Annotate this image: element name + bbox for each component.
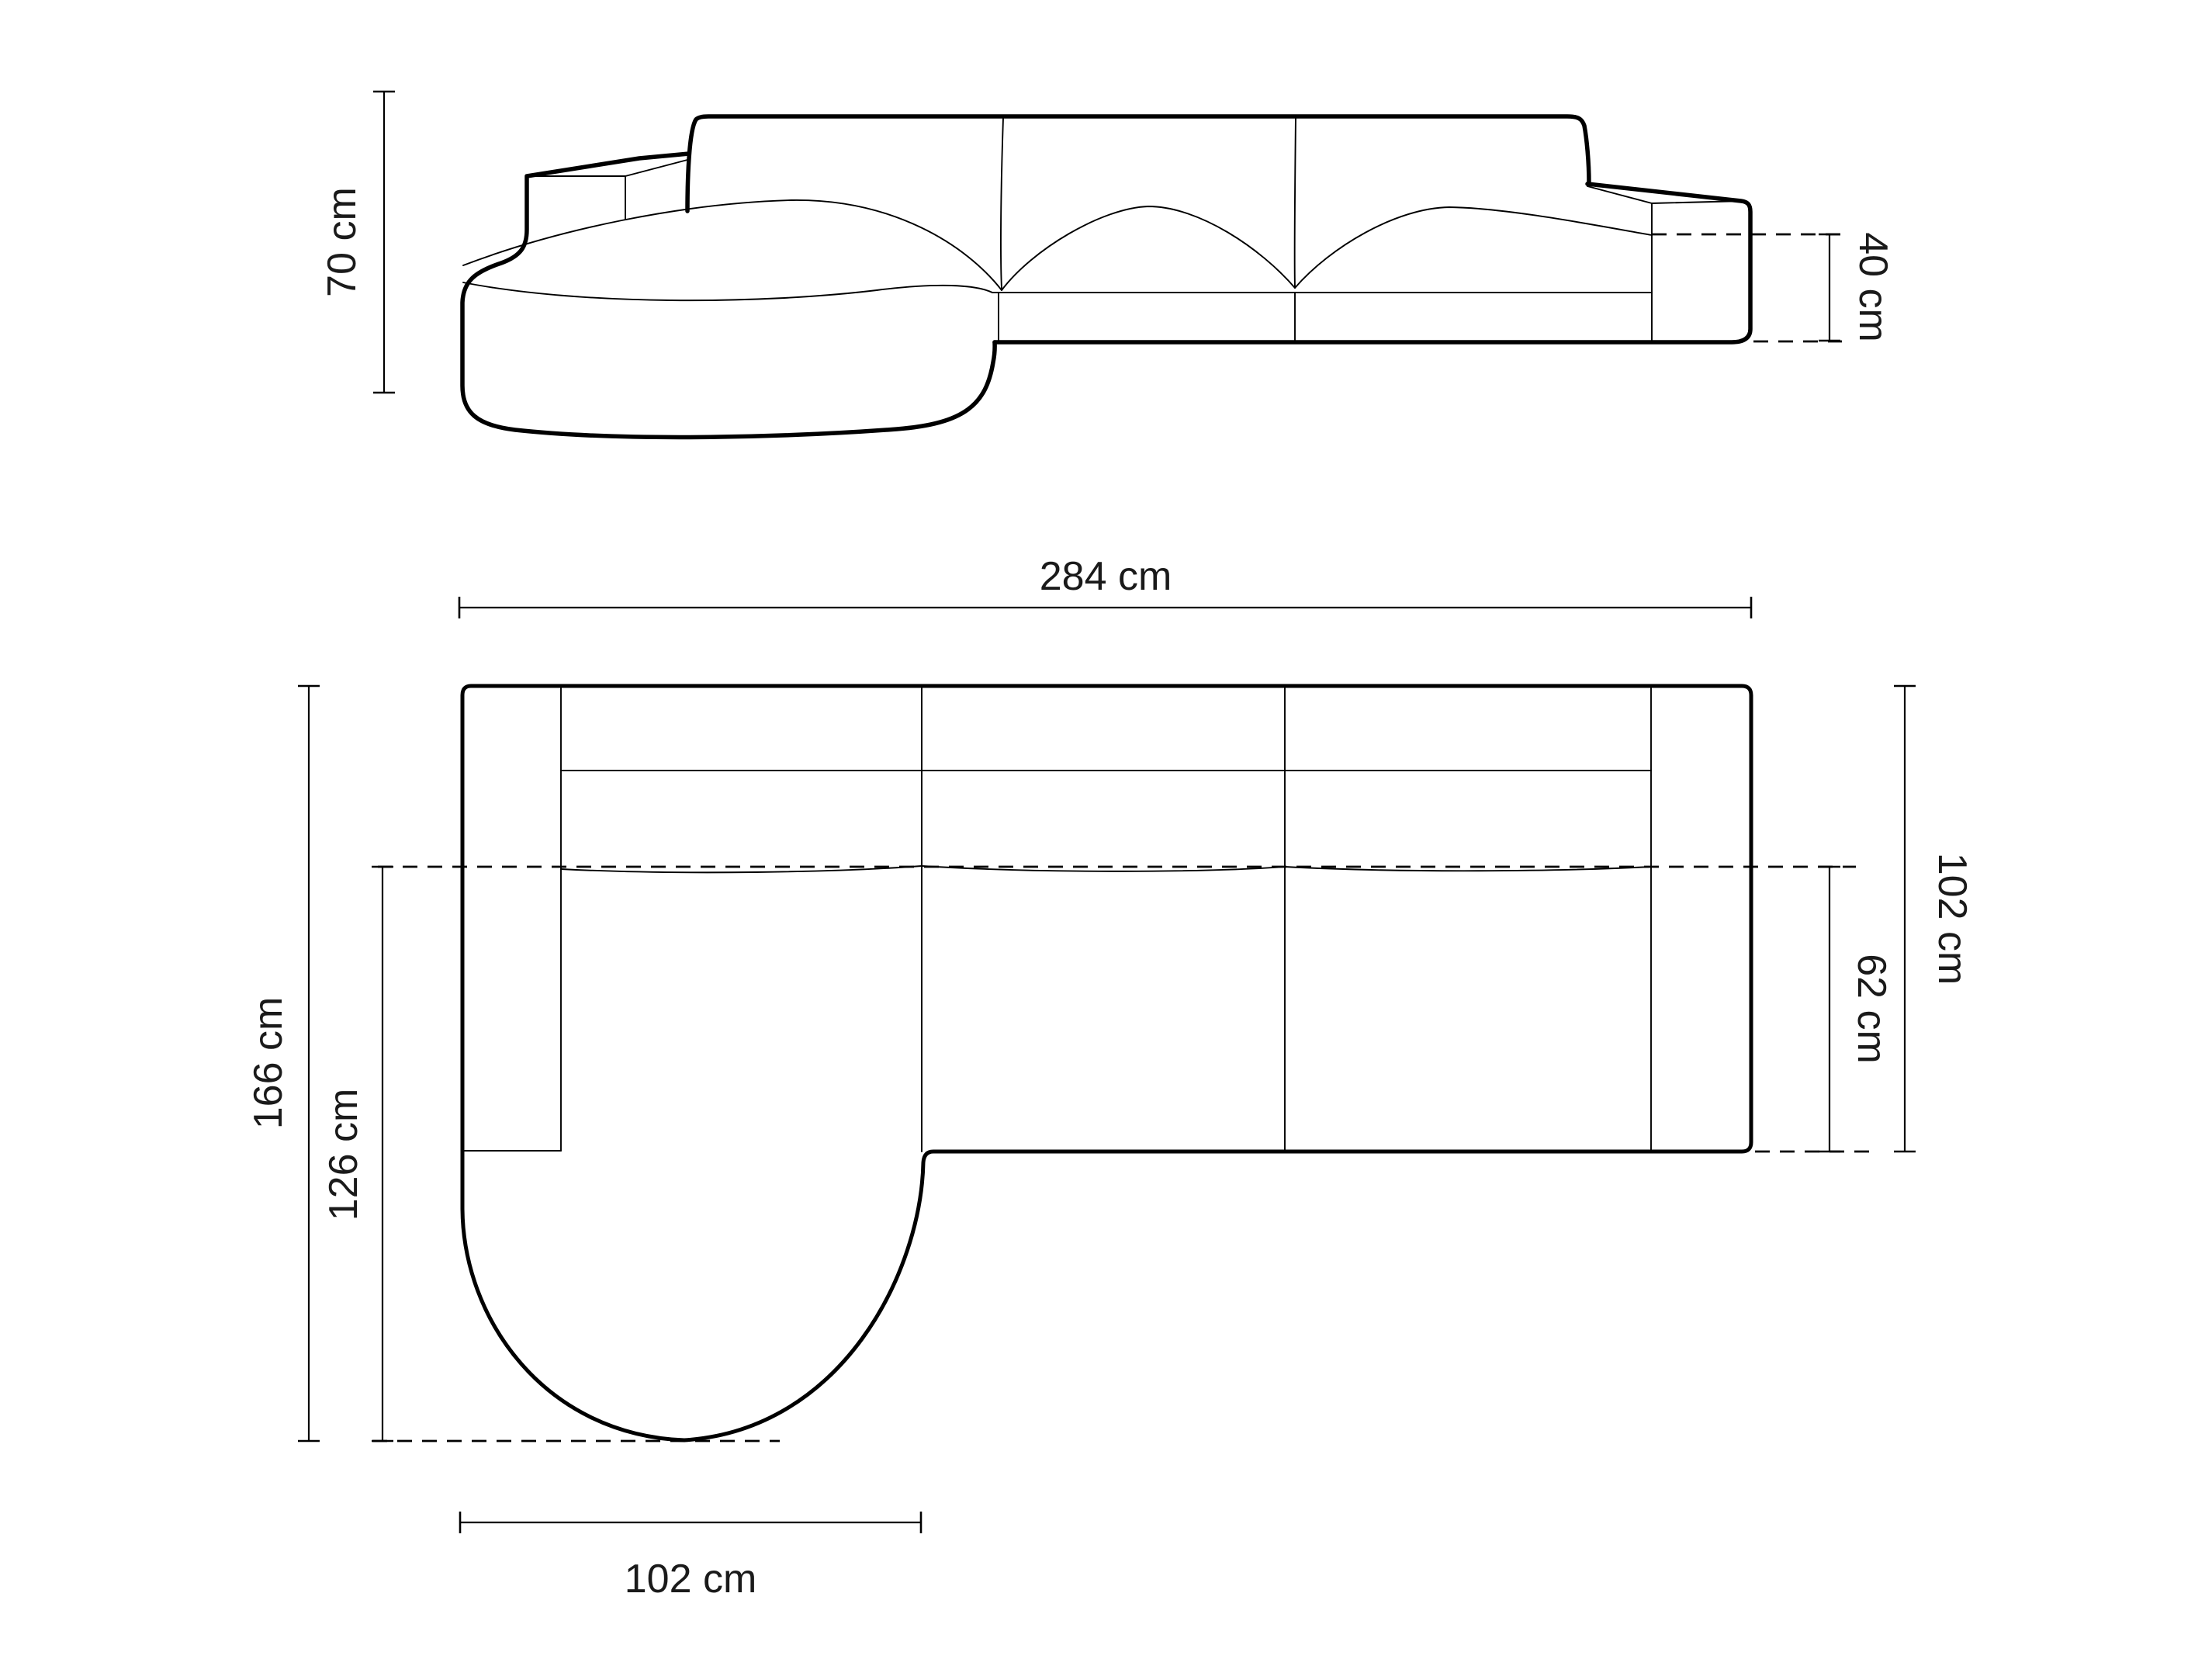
plan-right-depth-dimension: 102 cm: [1894, 686, 1975, 1152]
plan-right-depth-label: 102 cm: [1930, 853, 1975, 985]
sofa-dimensions-diagram: 70 cm 40 cm: [0, 0, 2212, 1659]
front-seat-height-dimension: 40 cm: [1652, 232, 1895, 342]
front-view: 70 cm 40 cm: [320, 92, 1895, 437]
plan-depth-label: 166 cm: [246, 997, 291, 1130]
left-armrest-chaise-outline: [462, 154, 995, 437]
diagram-canvas: 70 cm 40 cm: [0, 0, 2212, 1659]
plan-chaise-width-label: 102 cm: [625, 1557, 757, 1602]
plan-chaise-depth-label: 126 cm: [321, 1089, 366, 1221]
plan-seat-depth-label: 62 cm: [1849, 954, 1894, 1064]
front-height-dimension: 70 cm: [320, 92, 395, 393]
plan-chaise-width-dimension: 102 cm: [460, 1512, 921, 1602]
cushion-arc-right: [1295, 207, 1652, 288]
backrest-seam-right: [1295, 117, 1296, 288]
left-armrest-top-right-edge: [625, 160, 687, 176]
seat-base-top-line: [463, 282, 1652, 300]
right-armrest-top-front-edge: [1652, 201, 1743, 203]
cushion-arc-chaise: [463, 200, 1002, 290]
plan-chaise-depth-dimension: 126 cm: [321, 867, 393, 1441]
base-right-armrest-outline: [995, 184, 1750, 342]
front-seat-height-label: 40 cm: [1850, 232, 1895, 342]
plan-seat-depth-dimension: 62 cm: [1819, 867, 1894, 1152]
plan-width-label: 284 cm: [1040, 554, 1172, 599]
plan-view: 284 cm 166 cm 126 cm 102 cm: [246, 554, 1975, 1602]
plan-depth-dimension: 166 cm: [246, 686, 320, 1441]
backrest-seam-left: [1001, 118, 1003, 289]
backrest-outline: [687, 116, 1589, 211]
plan-outline: [462, 686, 1751, 1440]
plan-width-dimension: 284 cm: [459, 554, 1751, 618]
cushion-arc-middle: [1002, 206, 1295, 290]
front-height-label: 70 cm: [320, 187, 365, 297]
